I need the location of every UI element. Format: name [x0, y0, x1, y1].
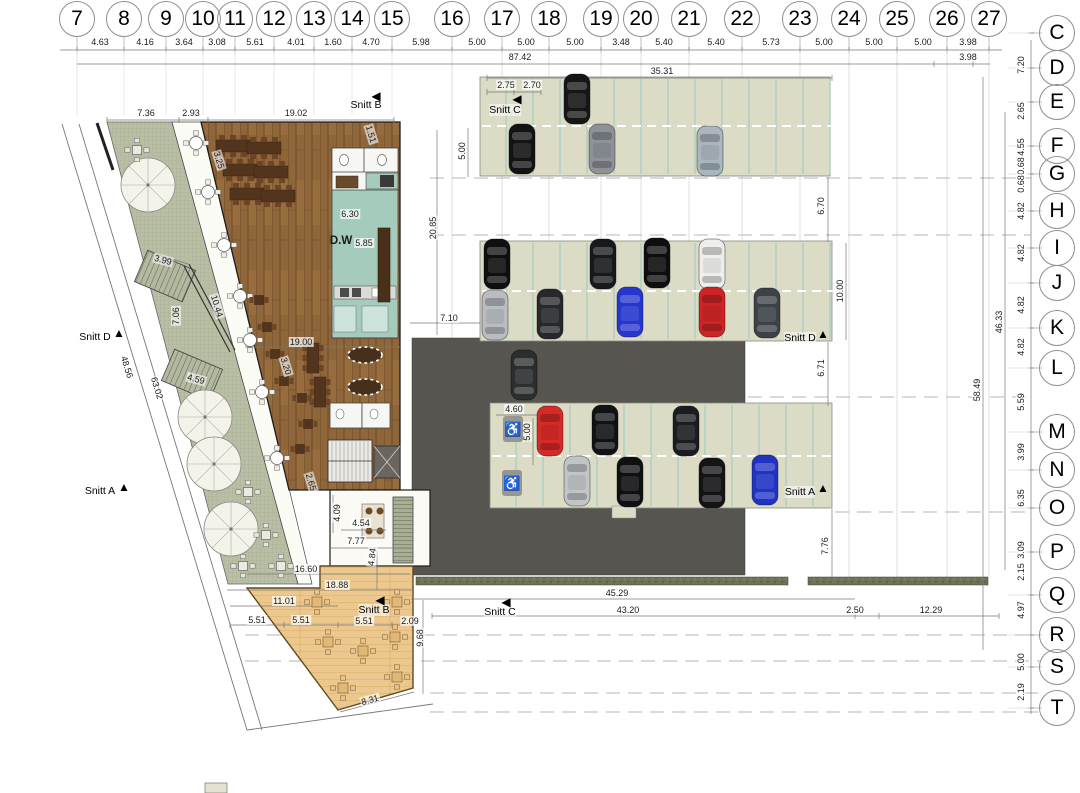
- dim-top: 1.60: [323, 37, 343, 47]
- dim-label: 7.77: [346, 536, 366, 546]
- dim-label: 5.00: [522, 422, 532, 442]
- grid-bubble-22: 22: [724, 1, 760, 37]
- dining-table-vertical: [303, 343, 324, 373]
- dim-top: 5.73: [761, 37, 781, 47]
- section-arrow-icon: ▲: [817, 328, 829, 340]
- dim-top: 3.48: [611, 37, 631, 47]
- grid-bubble-20: 20: [623, 1, 659, 37]
- dim-label: 2.75: [496, 80, 516, 90]
- dining-table: [247, 137, 281, 159]
- dim-label: 87.42: [508, 52, 533, 62]
- grid-bubble-21: 21: [671, 1, 707, 37]
- car: [537, 406, 563, 456]
- grid-bubble-11: 11: [217, 1, 253, 37]
- car: [697, 126, 723, 176]
- dim-right: 4.82: [1016, 337, 1026, 357]
- parking-notch: [612, 506, 636, 518]
- floor-plan-canvas: 789101112131415161718192021222324252627 …: [0, 0, 1080, 793]
- dining-table: [261, 185, 295, 207]
- dim-label: 19.02: [284, 108, 309, 118]
- dim-label: 18.88: [325, 580, 350, 590]
- dim-right: 4.55: [1016, 137, 1026, 157]
- grid-bubble-8: 8: [106, 1, 142, 37]
- grid-bubble-19: 19: [583, 1, 619, 37]
- dim-top: 5.00: [814, 37, 834, 47]
- dining-table: [254, 161, 288, 183]
- dim-label: 2.93: [181, 108, 201, 118]
- grid-bubble-D: D: [1039, 50, 1075, 86]
- dim-right: 2.19: [1016, 682, 1026, 702]
- grid-bubble-T: T: [1039, 690, 1075, 726]
- section-arrow-icon: ◀: [501, 596, 510, 608]
- car: [564, 456, 590, 506]
- dim-label: 7.76: [820, 536, 830, 556]
- grid-bubble-I: I: [1039, 230, 1075, 266]
- toilet-fixture: [340, 155, 349, 166]
- dining-table-vertical: [310, 377, 331, 407]
- hedge-strip: [416, 577, 988, 585]
- car: [589, 124, 615, 174]
- grid-bubble-12: 12: [256, 1, 292, 37]
- car: [673, 406, 699, 456]
- car: [617, 457, 643, 507]
- grid-bubble-P: P: [1039, 534, 1075, 570]
- car: [484, 239, 510, 289]
- dim-top: 3.98: [958, 37, 978, 47]
- car: [592, 405, 618, 455]
- grid-bubble-S: S: [1039, 649, 1075, 685]
- fridge: [380, 175, 394, 187]
- dim-right: 0.68: [1016, 174, 1026, 194]
- dim-label: 10.00: [835, 279, 845, 304]
- dim-top: 5.40: [654, 37, 674, 47]
- dim-top: 5.00: [516, 37, 536, 47]
- dim-label: 20.85: [428, 216, 438, 241]
- dim-label: 5.51: [354, 616, 374, 626]
- grid-bubble-16: 16: [434, 1, 470, 37]
- car: [537, 289, 563, 339]
- car: [699, 287, 725, 337]
- grid-bubble-O: O: [1039, 490, 1075, 526]
- car: [644, 238, 670, 288]
- dim-top: 5.00: [565, 37, 585, 47]
- grid-bubble-14: 14: [334, 1, 370, 37]
- section-marker-label: Snitt D: [784, 332, 816, 344]
- parasol-table: [204, 502, 258, 556]
- dim-label: 7.06: [171, 306, 181, 326]
- oval-table: [348, 379, 382, 395]
- dim-top: 4.70: [361, 37, 381, 47]
- dim-right: 4.97: [1016, 600, 1026, 620]
- bar-counter: [378, 228, 390, 302]
- dim-top: 5.00: [467, 37, 487, 47]
- dining-table: [223, 159, 257, 181]
- car: [752, 455, 778, 505]
- grid-bubble-G: G: [1039, 156, 1075, 192]
- grid-bubble-E: E: [1039, 84, 1075, 120]
- dim-label: 5.51: [247, 615, 267, 625]
- dining-table: [230, 183, 264, 205]
- grid-bubble-15: 15: [374, 1, 410, 37]
- dim-right: 5.59: [1016, 392, 1026, 412]
- dim-right: 6.35: [1016, 488, 1026, 508]
- dim-label: 11.01: [272, 596, 296, 606]
- car: [482, 290, 508, 340]
- accessible-parking-icon: ♿: [502, 470, 522, 496]
- grid-bubble-9: 9: [148, 1, 184, 37]
- bottom-room: [330, 490, 430, 566]
- dim-top: 4.01: [286, 37, 306, 47]
- dim-label: 58.49: [972, 378, 982, 403]
- grid-bubble-17: 17: [484, 1, 520, 37]
- section-arrow-icon: ◀: [375, 594, 384, 606]
- section-marker-label: Snitt A: [85, 485, 115, 497]
- car: [699, 458, 725, 508]
- grid-bubble-Q: Q: [1039, 577, 1075, 613]
- dim-right: 3.99: [1016, 442, 1026, 462]
- section-marker-label: Snitt C: [484, 606, 516, 618]
- grid-bubble-N: N: [1039, 452, 1075, 488]
- grid-bubble-R: R: [1039, 617, 1075, 653]
- dim-label: 4.09: [332, 503, 342, 523]
- dim-top: 5.40: [706, 37, 726, 47]
- grid-bubble-26: 26: [929, 1, 965, 37]
- dim-label: 2.50: [845, 605, 865, 615]
- grid-bubble-25: 25: [879, 1, 915, 37]
- car: [699, 239, 725, 289]
- grid-bubble-23: 23: [782, 1, 818, 37]
- parasol-table: [187, 437, 241, 491]
- grid-bubble-24: 24: [831, 1, 867, 37]
- dim-right: 4.82: [1016, 243, 1026, 263]
- dim-label: 35.31: [650, 66, 675, 76]
- dim-label: 4.54: [351, 518, 371, 528]
- section-marker-label: Snitt A: [785, 486, 815, 498]
- car: [564, 74, 590, 124]
- dim-right: 2.65: [1016, 101, 1026, 121]
- grid-bubble-18: 18: [531, 1, 567, 37]
- accessible-parking-icon: ♿: [503, 416, 523, 442]
- grid-bubble-10: 10: [185, 1, 221, 37]
- grid-bubble-C: C: [1039, 15, 1075, 51]
- car: [617, 287, 643, 337]
- dim-label: 2.70: [522, 80, 542, 90]
- car: [590, 239, 616, 289]
- section-arrow-icon: ◀: [371, 90, 380, 102]
- dim-label: D.W: [329, 236, 353, 246]
- dim-label: 6.70: [816, 196, 826, 216]
- grid-bubble-L: L: [1039, 350, 1075, 386]
- section-arrow-icon: ◀: [512, 93, 521, 105]
- dim-right: 7.20: [1016, 55, 1026, 75]
- car: [509, 124, 535, 174]
- dim-top: 5.61: [245, 37, 265, 47]
- exterior-stair: [393, 497, 413, 563]
- grid-bubble-7: 7: [59, 1, 95, 37]
- section-arrow-icon: ▲: [817, 482, 829, 494]
- dim-right: 5.00: [1016, 652, 1026, 672]
- dim-right: 2.15: [1016, 562, 1026, 582]
- grid-bubble-H: H: [1039, 193, 1075, 229]
- section-arrow-icon: ▲: [118, 481, 130, 493]
- oval-table: [348, 347, 382, 363]
- dim-top: 5.00: [864, 37, 884, 47]
- dim-right: 4.82: [1016, 295, 1026, 315]
- dim-top: 3.64: [174, 37, 194, 47]
- grid-bubble-M: M: [1039, 414, 1075, 450]
- legend-swatch: [205, 783, 227, 793]
- dim-label: 43.20: [616, 605, 641, 615]
- dim-label: 7.36: [136, 108, 156, 118]
- dim-right: 4.82: [1016, 201, 1026, 221]
- dim-top: 4.16: [135, 37, 155, 47]
- dim-label: 5.51: [291, 615, 311, 625]
- staff-table: [336, 176, 358, 188]
- dim-right: 3.09: [1016, 540, 1026, 560]
- grid-bubble-27: 27: [971, 1, 1007, 37]
- section-marker-label: Snitt B: [359, 604, 390, 616]
- dim-label: 6.71: [816, 358, 826, 378]
- dim-label: 16.60: [294, 564, 319, 574]
- section-arrow-icon: ▲: [113, 327, 125, 339]
- dim-label: 5.85: [354, 238, 374, 248]
- dim-label: 19.00: [289, 337, 314, 347]
- grid-bubble-K: K: [1039, 310, 1075, 346]
- dim-label: 6.30: [340, 209, 360, 219]
- dim-right: 0.68: [1016, 156, 1026, 176]
- car: [511, 350, 537, 400]
- dim-label: 2.09: [400, 616, 420, 626]
- parasol-table: [121, 158, 175, 212]
- dim-label: 5.00: [457, 141, 467, 161]
- dim-label: 9.68: [415, 628, 425, 648]
- car: [754, 288, 780, 338]
- dim-label: 45.29: [605, 588, 630, 598]
- toilet-fixture: [378, 155, 387, 166]
- dim-label: 7.10: [439, 313, 459, 323]
- dim-top: 5.00: [913, 37, 933, 47]
- dim-label: 3.98: [958, 52, 978, 62]
- dim-label: 46.33: [994, 310, 1004, 335]
- grid-bubble-13: 13: [296, 1, 332, 37]
- parasol-table: [178, 390, 232, 444]
- dim-top: 5.98: [411, 37, 431, 47]
- dim-top: 3.08: [207, 37, 227, 47]
- dim-label: 4.60: [504, 404, 524, 414]
- dim-top: 4.63: [90, 37, 110, 47]
- grid-bubble-J: J: [1039, 265, 1075, 301]
- section-marker-label: Snitt D: [79, 331, 111, 343]
- dim-label: 12.29: [919, 605, 944, 615]
